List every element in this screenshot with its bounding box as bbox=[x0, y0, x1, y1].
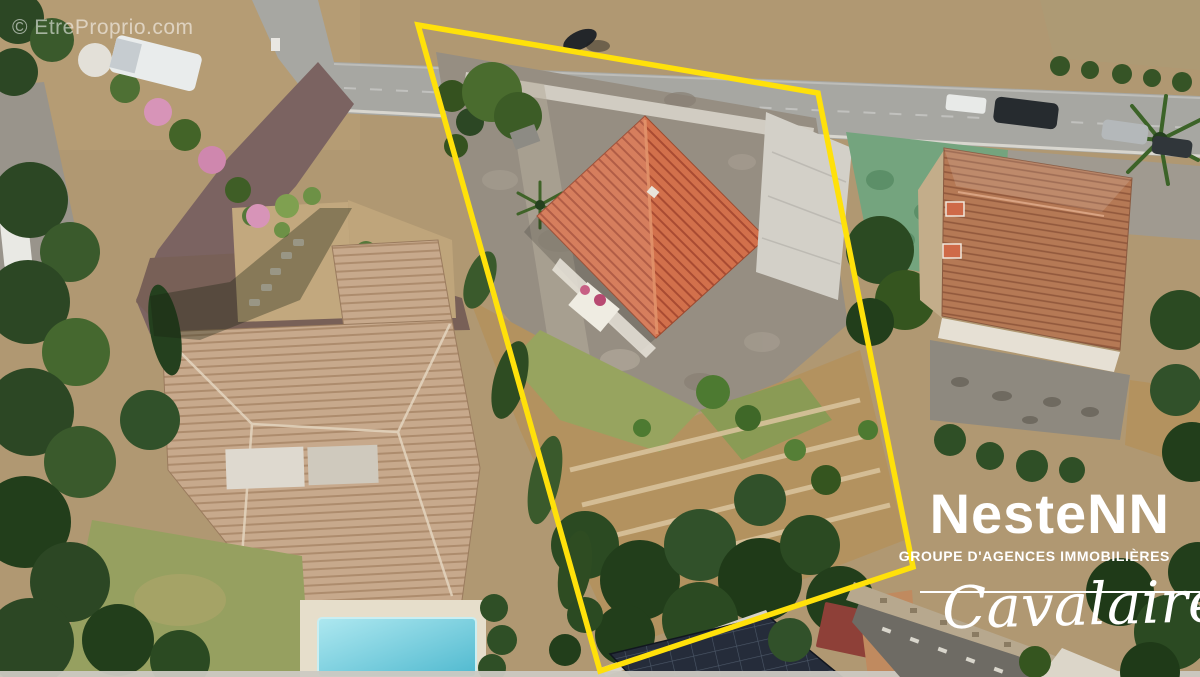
awning bbox=[225, 447, 304, 490]
right-house-roof bbox=[942, 148, 1132, 350]
agency-name: NesteNN bbox=[899, 486, 1170, 542]
location-script: Cavalaire bbox=[941, 573, 1192, 638]
agency-logo: NesteNN GROUPE D'AGENCES IMMOBILIÈRES bbox=[899, 486, 1170, 564]
agency-tagline: GROUPE D'AGENCES IMMOBILIÈRES bbox=[899, 548, 1170, 564]
awning bbox=[307, 445, 378, 485]
road-sign bbox=[271, 38, 280, 51]
swimming-pool bbox=[318, 618, 476, 677]
watermark: © EtreProprio.com bbox=[12, 16, 194, 40]
aerial-photo: © EtreProprio.com NesteNN GROUPE D'AGENC… bbox=[0, 0, 1200, 677]
dormer bbox=[946, 202, 964, 216]
dormer bbox=[943, 244, 961, 258]
